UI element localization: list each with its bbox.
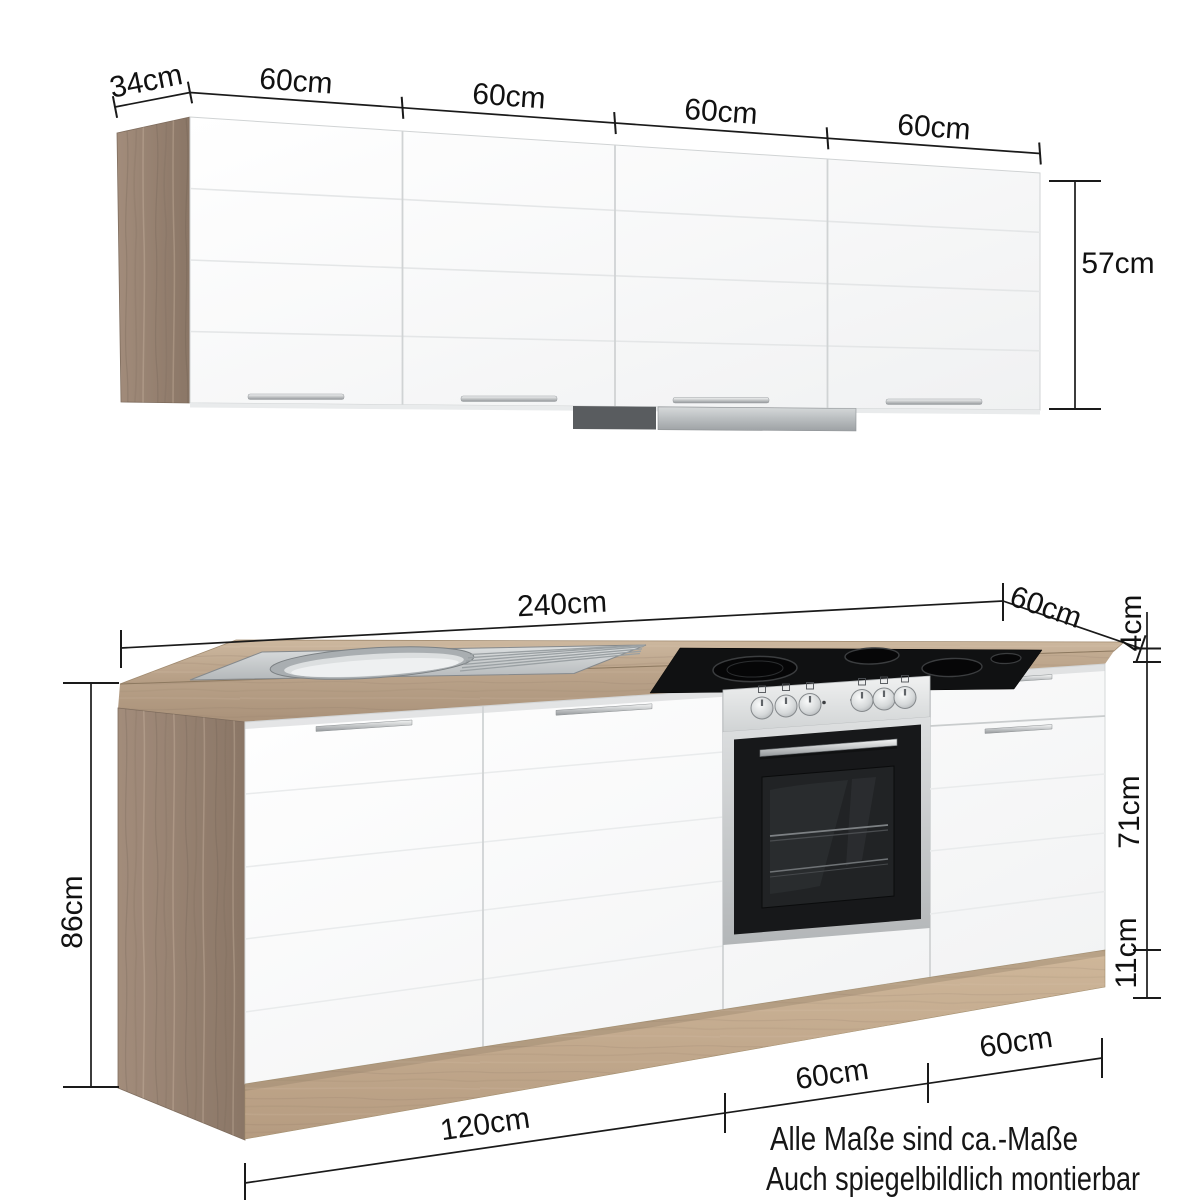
dim-label-segment-1: 120cm (438, 1102, 532, 1148)
wall-door-handle (248, 394, 344, 400)
dim-label-wall-height: 57cm (1081, 247, 1154, 280)
dim-tick (402, 97, 404, 119)
dimension-wall-height: 57cm (1049, 181, 1155, 409)
kitchen-diagram-canvas: 34cm 60cm 60cm 60cm 60cm 57cm 240cm 60cm… (0, 0, 1200, 1200)
dim-label-wall-door-2: 60cm (471, 77, 547, 115)
wall-door-handle (673, 398, 769, 404)
wall-cabinet (117, 117, 1040, 431)
dimension-right-column: 4cm 71cm 11cm (1110, 595, 1161, 998)
dim-label-segment-2: 60cm (793, 1053, 870, 1096)
note-line-1: Alle Maße sind ca.-Maße (770, 1120, 1078, 1157)
indicator-light (822, 701, 826, 705)
dim-tick (1039, 143, 1041, 165)
dim-label-wall-depth: 34cm (107, 58, 185, 105)
dim-label-base-width: 240cm (516, 586, 608, 624)
extractor-hood-side (573, 406, 656, 430)
dim-label-wall-door-4: 60cm (896, 108, 972, 146)
note-line-2: Auch spiegelbildlich montierbar (766, 1160, 1140, 1197)
wall-cabinet-side-panel-grain (117, 117, 190, 403)
base-cabinet (118, 640, 1124, 1140)
dim-label-worktop-thickness: 4cm (1115, 595, 1148, 652)
dimension-wall-depth: 34cm (107, 58, 192, 118)
wall-door-handle (886, 399, 982, 405)
dim-label-wall-door-3: 60cm (683, 93, 759, 131)
dim-label-base-height: 86cm (56, 875, 89, 948)
notes: Alle Maße sind ca.-Maße Auch spiegelbild… (766, 1120, 1140, 1197)
dim-tick (827, 127, 829, 149)
wall-door-handle (461, 396, 557, 402)
oven (723, 717, 930, 945)
dim-label-segment-3: 60cm (977, 1021, 1054, 1064)
dim-label-wall-door-1: 60cm (258, 62, 334, 100)
base-side-panel-grain (118, 708, 245, 1140)
dimension-base-height: 86cm (56, 683, 119, 1087)
dim-tick (614, 112, 616, 134)
dim-label-plinth-height: 11cm (1110, 917, 1143, 988)
extractor-hood-front (658, 407, 856, 431)
product-dimension-diagram: 34cm 60cm 60cm 60cm 60cm 57cm 240cm 60cm… (0, 0, 1200, 1200)
dim-label-front-height: 71cm (1113, 775, 1146, 848)
dim-label-base-depth: 60cm (1006, 580, 1086, 635)
